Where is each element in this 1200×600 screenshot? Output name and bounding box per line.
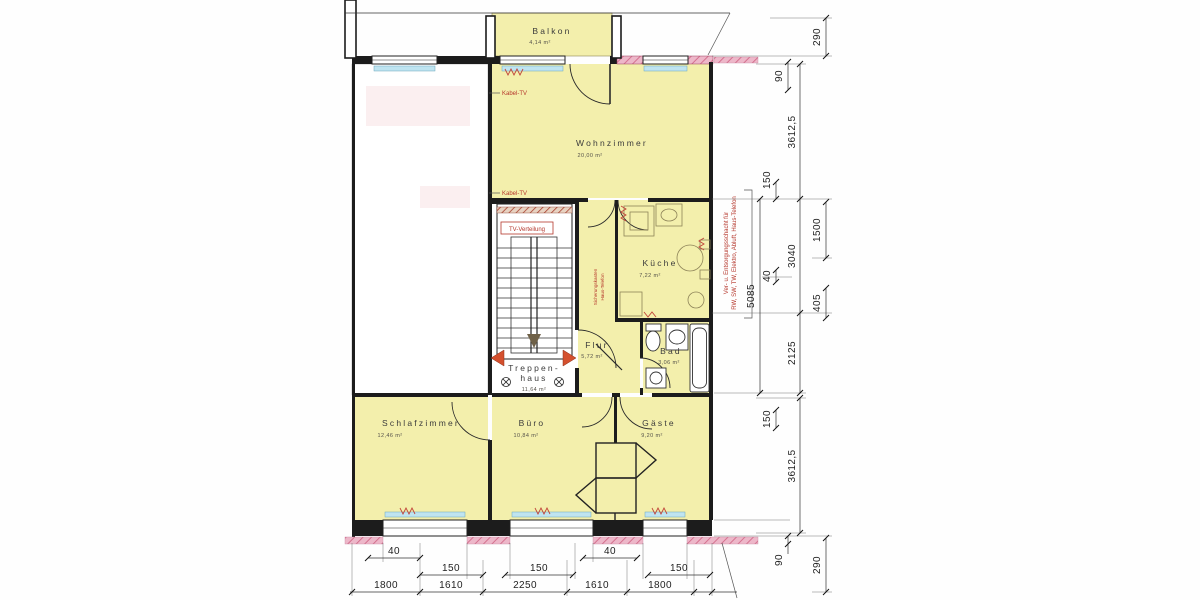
kabel-tv-label-1: Kabel-TV (502, 91, 527, 97)
kabel-tv-label-2: Kabel-TV (502, 191, 527, 197)
label-buero: Büro (519, 418, 546, 428)
wc-tank (646, 324, 661, 331)
shaft-note-line1: Ver- u. Entsorgungsschacht für (724, 212, 730, 294)
area-buero: 10,84 m² (514, 433, 539, 439)
dim-right-290-bottom: 290 (812, 556, 823, 574)
reference-diagonal-bottom (722, 543, 737, 598)
dim-right-90-top: 90 (774, 70, 785, 82)
washing-machine (646, 368, 666, 388)
area-flur: 5,72 m² (581, 354, 602, 360)
dimension-chain-right: 290 90 3612,5 150 5085 1500 3040 40 405 … (712, 15, 832, 595)
area-gaeste: 9,20 m² (641, 433, 662, 439)
corridor-note-line2: Haus-Telefon (600, 273, 605, 301)
dim-right-2125: 2125 (787, 341, 798, 365)
floor-plan-page: Balkon 4,14 m² Wohnzimmer 20,00 m² Küche… (0, 0, 1200, 600)
dim-right-150-top: 150 (762, 171, 773, 189)
area-balkon: 4,14 m² (529, 40, 550, 46)
dim-bottom-150-2: 150 (530, 563, 548, 574)
label-gaeste: Gäste (642, 418, 676, 428)
dim-bottom-1610-2: 1610 (585, 580, 609, 591)
area-kueche: 7,22 m² (639, 273, 660, 279)
room-wohnzimmer (492, 64, 712, 198)
room-schlafzimmer (355, 397, 488, 520)
label-schlafzimmer: Schlafzimmer (382, 418, 460, 428)
sink-icon (669, 330, 685, 344)
label-treppenhaus-1: Treppen- (508, 363, 560, 373)
dim-bottom-1610-1: 1610 (439, 580, 463, 591)
cable-tray-hatch (497, 207, 572, 213)
area-treppenhaus: 11,64 m² (522, 387, 547, 393)
tv-verteilung-label: TV-Verteilung (509, 227, 545, 233)
dim-right-1500: 1500 (812, 218, 823, 242)
dim-bottom-1800-2: 1800 (648, 580, 672, 591)
area-bad: 3,06 m² (658, 360, 679, 366)
dim-right-3612-bottom: 3612,5 (787, 449, 798, 482)
label-kueche: Küche (642, 258, 677, 268)
dim-right-90-bottom: 90 (774, 554, 785, 566)
label-bad: Bad (660, 346, 682, 356)
dim-right-40: 40 (762, 270, 773, 282)
label-balkon: Balkon (532, 26, 571, 36)
area-wohnzimmer: 20,00 m² (578, 153, 603, 159)
label-wohnzimmer: Wohnzimmer (576, 138, 648, 148)
floor-plan-drawing: Balkon 4,14 m² Wohnzimmer 20,00 m² Küche… (0, 0, 1200, 600)
dim-bottom-40-1: 40 (388, 546, 400, 557)
pink-wall-bottom (345, 537, 758, 544)
dim-bottom-2250: 2250 (513, 580, 537, 591)
corridor-note-line1: Sicherungskasten (593, 268, 598, 305)
dim-bottom-150-3: 150 (670, 563, 688, 574)
dimension-chain-bottom: 40 40 150 150 150 1800 1610 2250 1610 18… (349, 543, 737, 596)
dim-right-150-bottom: 150 (762, 410, 773, 428)
dim-bottom-1800-1: 1800 (374, 580, 398, 591)
dim-bottom-40-2: 40 (604, 546, 616, 557)
reference-diagonal-top (708, 13, 730, 55)
dim-right-3040: 3040 (787, 244, 798, 268)
wc-icon (646, 331, 660, 351)
dim-bottom-150-1: 150 (442, 563, 460, 574)
shaft-note-line2: RW, SW, TW, Elektro, Abluft, Haus-Telefo… (732, 196, 738, 310)
neighbor-highlight-2 (420, 186, 470, 208)
dim-right-290-top: 290 (812, 28, 823, 46)
area-schlafzimmer: 12,46 m² (378, 433, 403, 439)
label-flur: Flur (585, 340, 608, 350)
dim-right-5085: 5085 (746, 284, 757, 308)
label-treppenhaus-2: haus (520, 373, 547, 383)
dim-right-405: 405 (812, 294, 823, 312)
room-buero-gaeste (492, 397, 712, 520)
neighbor-highlight-1 (366, 86, 470, 126)
dim-right-3612-top: 3612,5 (787, 115, 798, 148)
